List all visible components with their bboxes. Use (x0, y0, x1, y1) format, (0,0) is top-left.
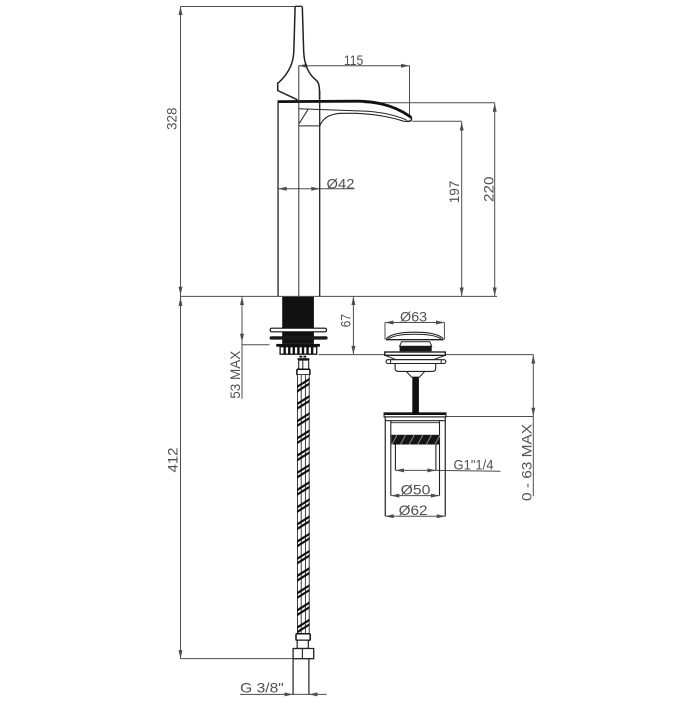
svg-text:53 MAX: 53 MAX (227, 350, 243, 399)
svg-text:Ø62: Ø62 (399, 502, 428, 518)
svg-text:328: 328 (163, 107, 179, 130)
svg-text:G 3/8": G 3/8" (240, 680, 284, 696)
svg-text:Ø50: Ø50 (401, 482, 431, 498)
svg-text:Ø42: Ø42 (327, 175, 355, 191)
svg-text:197: 197 (446, 181, 462, 204)
svg-text:412: 412 (165, 447, 181, 472)
svg-text:67: 67 (337, 314, 353, 328)
svg-text:115: 115 (344, 52, 364, 68)
svg-text:G1"1/4: G1"1/4 (454, 457, 494, 473)
svg-text:0 - 63 MAX: 0 - 63 MAX (519, 423, 535, 501)
svg-text:Ø63: Ø63 (400, 308, 427, 324)
svg-text:220: 220 (481, 176, 497, 202)
